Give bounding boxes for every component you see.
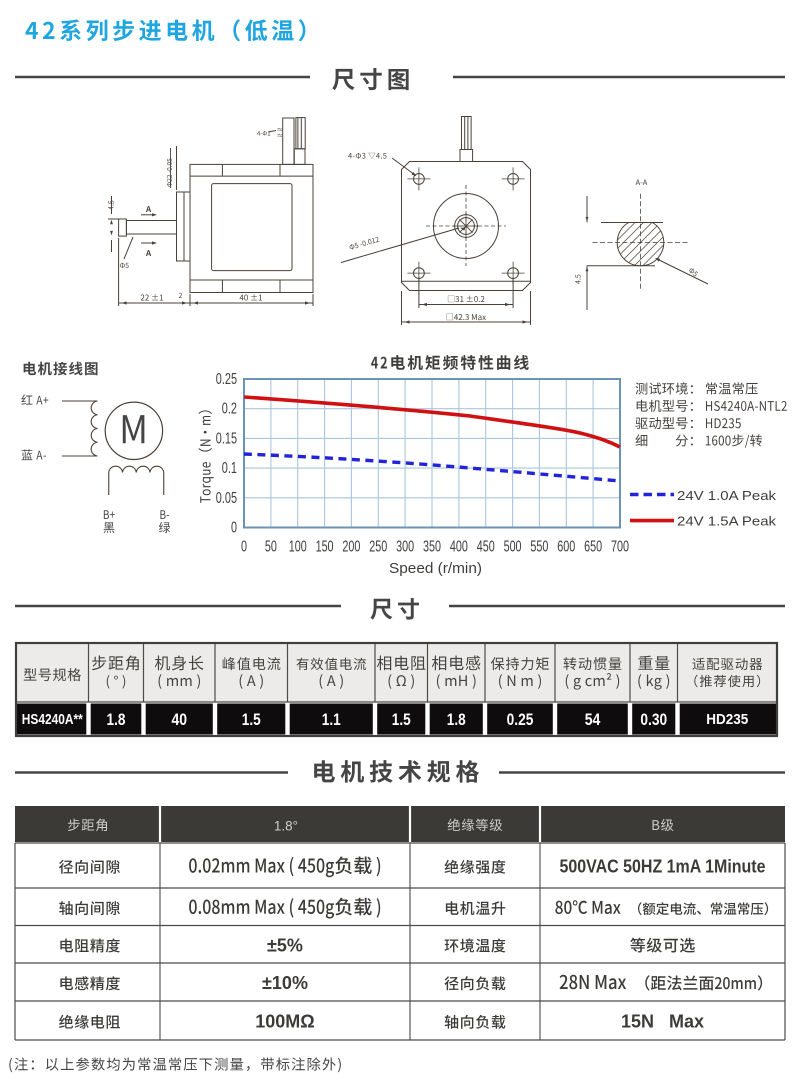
svg-text:1.8: 1.8 <box>107 710 126 729</box>
svg-text:500VAC 50HZ 1mA 1Minute: 500VAC 50HZ 1mA 1Minute <box>560 857 766 877</box>
svg-text:450: 450 <box>477 539 495 556</box>
svg-text:200: 200 <box>342 539 360 556</box>
svg-text:0.30: 0.30 <box>640 710 667 729</box>
svg-text:50: 50 <box>265 539 277 556</box>
svg-text:0: 0 <box>231 520 237 537</box>
svg-text:HD235: HD235 <box>706 711 748 728</box>
svg-text:40: 40 <box>171 710 187 729</box>
svg-text:300: 300 <box>396 539 414 556</box>
svg-text:1.1: 1.1 <box>322 710 341 729</box>
svg-text:250: 250 <box>369 539 387 556</box>
svg-text:700: 700 <box>611 539 629 556</box>
svg-text:±10%: ±10% <box>262 973 308 993</box>
svg-text:HS4240A**: HS4240A** <box>22 711 83 728</box>
svg-text:0: 0 <box>241 539 247 556</box>
svg-text:0.1: 0.1 <box>222 460 237 477</box>
svg-text:24V 1.0A Peak: 24V 1.0A Peak <box>677 488 777 503</box>
svg-text:550: 550 <box>530 539 548 556</box>
svg-text:1.5: 1.5 <box>392 710 411 729</box>
svg-text:0.25: 0.25 <box>507 710 534 729</box>
svg-text:500: 500 <box>504 539 522 556</box>
svg-text:1.8°: 1.8° <box>274 819 298 834</box>
svg-text:0.2: 0.2 <box>222 401 237 418</box>
svg-text:24V 1.5A Peak: 24V 1.5A Peak <box>677 514 777 529</box>
svg-text:0.05: 0.05 <box>216 490 237 507</box>
svg-text:1.8: 1.8 <box>447 710 466 729</box>
svg-text:600: 600 <box>557 539 575 556</box>
svg-text:100MΩ: 100MΩ <box>255 1012 314 1032</box>
svg-text:±5%: ±5% <box>267 935 303 955</box>
svg-text:15N Max: 15N Max <box>621 1012 704 1032</box>
svg-text:0.15: 0.15 <box>216 430 237 447</box>
svg-text:1.5: 1.5 <box>242 710 261 729</box>
svg-text:0.25: 0.25 <box>216 371 237 388</box>
svg-text:400: 400 <box>450 539 468 556</box>
svg-text:350: 350 <box>423 539 441 556</box>
svg-text:150: 150 <box>316 539 334 556</box>
svg-text:100: 100 <box>289 539 307 556</box>
svg-text:54: 54 <box>585 710 601 729</box>
svg-text:650: 650 <box>584 539 602 556</box>
svg-text:Speed (r/min): Speed (r/min) <box>389 560 482 577</box>
